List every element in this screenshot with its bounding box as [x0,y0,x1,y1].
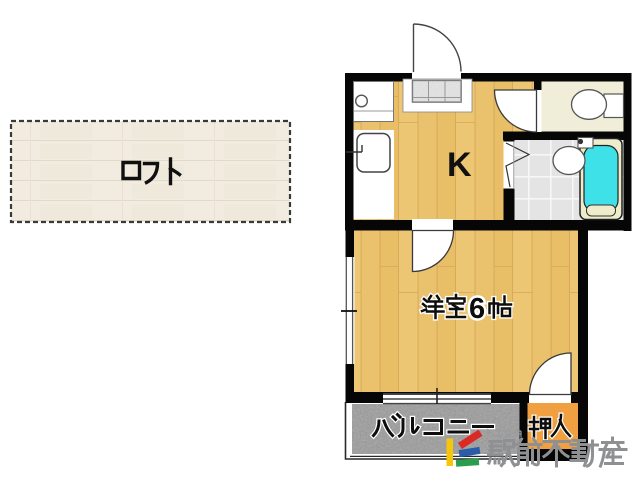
svg-text:6: 6 [469,293,485,325]
svg-text:K: K [447,146,472,184]
